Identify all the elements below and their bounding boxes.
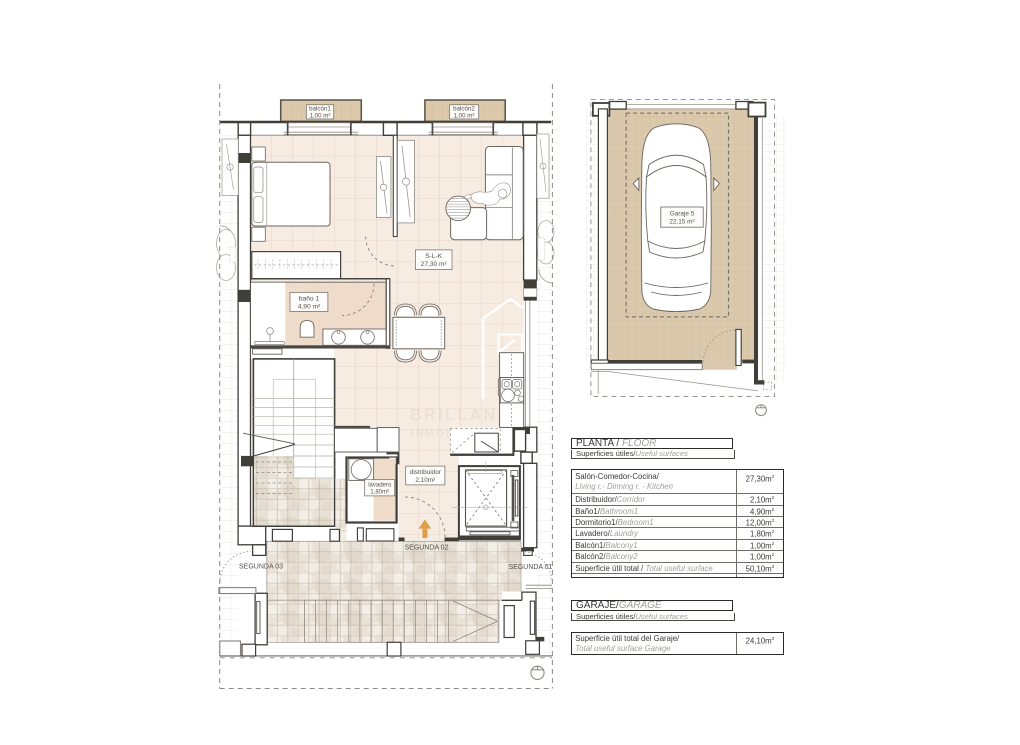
svg-text:balcón2: balcón2 [453, 106, 475, 113]
svg-text:Garaje 5: Garaje 5 [670, 211, 695, 218]
svg-text:BRILLAN: BRILLAN [410, 407, 498, 424]
svg-text:SEGUNDA 01: SEGUNDA 01 [509, 564, 553, 571]
svg-text:SEGUNDA 02: SEGUNDA 02 [405, 544, 449, 551]
svg-text:2,10m²: 2,10m² [415, 477, 435, 484]
svg-text:SEGUNDA 03: SEGUNDA 03 [239, 563, 283, 570]
svg-text:27,30 m²: 27,30 m² [421, 261, 448, 268]
svg-text:1,80m²: 1,80m² [370, 490, 389, 496]
svg-text:balcón1: balcón1 [309, 106, 331, 113]
svg-text:INMOB: INMOB [411, 428, 455, 440]
svg-text:distribuidor: distribuidor [410, 469, 442, 476]
svg-text:22,15 m²: 22,15 m² [669, 219, 694, 226]
svg-text:S-L-K: S-L-K [425, 253, 442, 260]
svg-text:1,00 m²: 1,00 m² [310, 113, 331, 120]
svg-text:baño 1: baño 1 [299, 295, 320, 302]
svg-text:lavadero: lavadero [368, 483, 392, 489]
svg-text:4,90 m²: 4,90 m² [298, 303, 321, 310]
svg-text:1,00 m²: 1,00 m² [454, 113, 475, 120]
